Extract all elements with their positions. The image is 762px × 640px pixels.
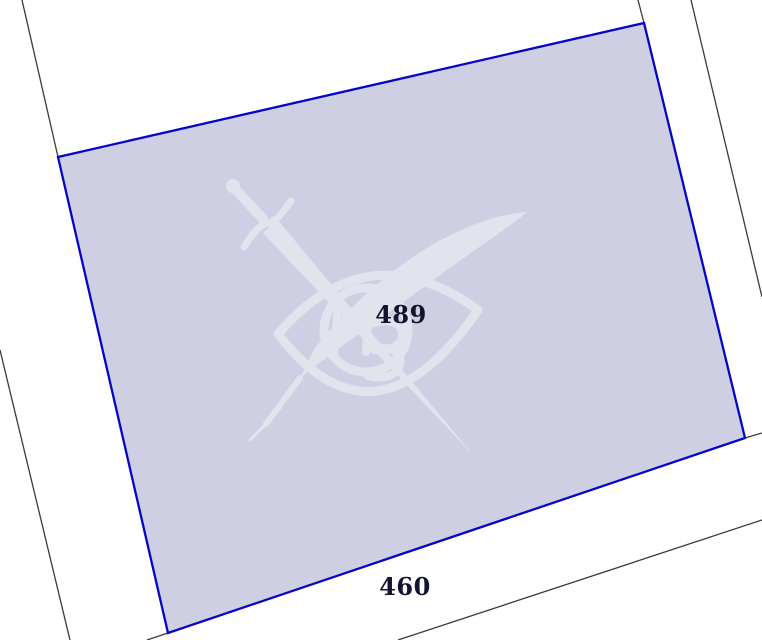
boundary-line — [638, 0, 644, 23]
neighbor-parcel-number-label: 460 — [379, 572, 431, 601]
boundary-line — [147, 633, 168, 640]
boundary-line — [745, 433, 762, 438]
boundary-line — [0, 350, 70, 640]
boundary-line — [22, 0, 58, 157]
boundary-line — [691, 0, 762, 297]
parcel-number-label: 489 — [375, 300, 427, 329]
map-canvas[interactable]: 489 460 — [0, 0, 762, 640]
cadastral-map-view[interactable]: 489 460 — [0, 0, 762, 640]
